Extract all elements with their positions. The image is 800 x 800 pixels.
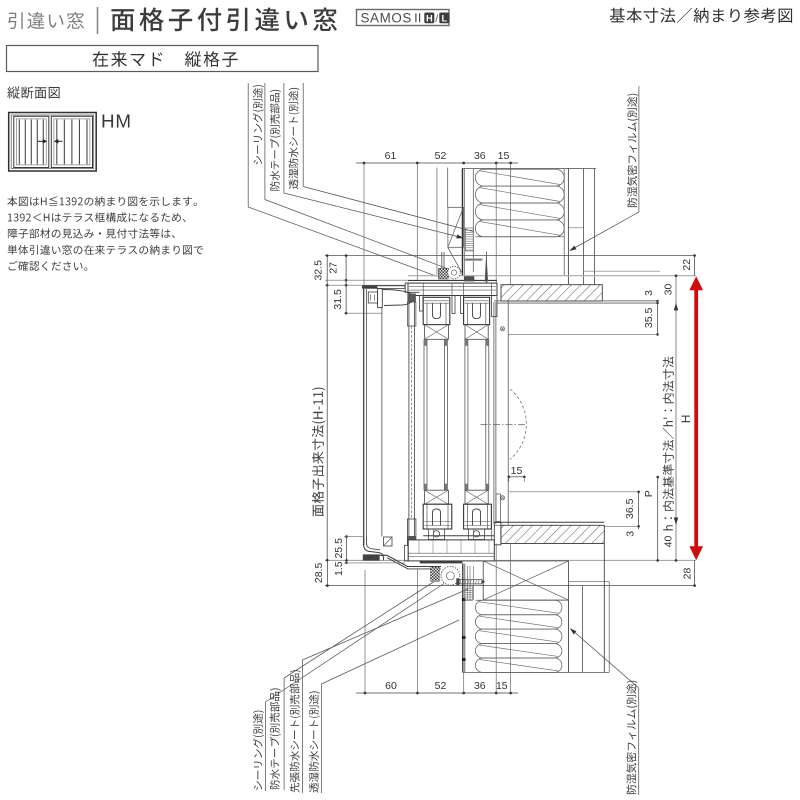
svg-text:52: 52 bbox=[435, 680, 447, 692]
svg-text:30: 30 bbox=[662, 284, 674, 296]
svg-text:40: 40 bbox=[663, 536, 675, 548]
svg-text:27: 27 bbox=[327, 262, 339, 274]
svg-text:35.5: 35.5 bbox=[643, 308, 655, 329]
svg-text:22: 22 bbox=[681, 259, 693, 271]
svg-text:36: 36 bbox=[474, 680, 486, 692]
svg-text:36.5: 36.5 bbox=[624, 498, 636, 519]
svg-text:L: L bbox=[441, 13, 447, 23]
svg-text:15: 15 bbox=[496, 680, 508, 692]
svg-text:15: 15 bbox=[511, 465, 523, 477]
svg-text:/: / bbox=[435, 14, 438, 25]
svg-text:1.5: 1.5 bbox=[333, 561, 345, 576]
svg-text:25.5: 25.5 bbox=[333, 538, 345, 559]
svg-text:28.5: 28.5 bbox=[313, 563, 325, 584]
svg-text:52: 52 bbox=[435, 150, 447, 162]
svg-text:31.5: 31.5 bbox=[332, 289, 344, 310]
svg-text:60: 60 bbox=[385, 680, 397, 692]
svg-text:P: P bbox=[643, 490, 655, 497]
svg-text:SAMOS: SAMOS bbox=[361, 11, 412, 26]
svg-text:3: 3 bbox=[625, 531, 637, 537]
svg-text:HM: HM bbox=[101, 111, 132, 132]
svg-text:3: 3 bbox=[643, 290, 655, 296]
svg-text:H: H bbox=[679, 415, 693, 424]
svg-text:H: H bbox=[426, 13, 433, 23]
svg-text:28: 28 bbox=[681, 568, 693, 580]
svg-text:36: 36 bbox=[474, 150, 486, 162]
svg-text:32.5: 32.5 bbox=[313, 260, 325, 281]
svg-text:61: 61 bbox=[385, 150, 397, 162]
svg-text:15: 15 bbox=[498, 150, 510, 162]
